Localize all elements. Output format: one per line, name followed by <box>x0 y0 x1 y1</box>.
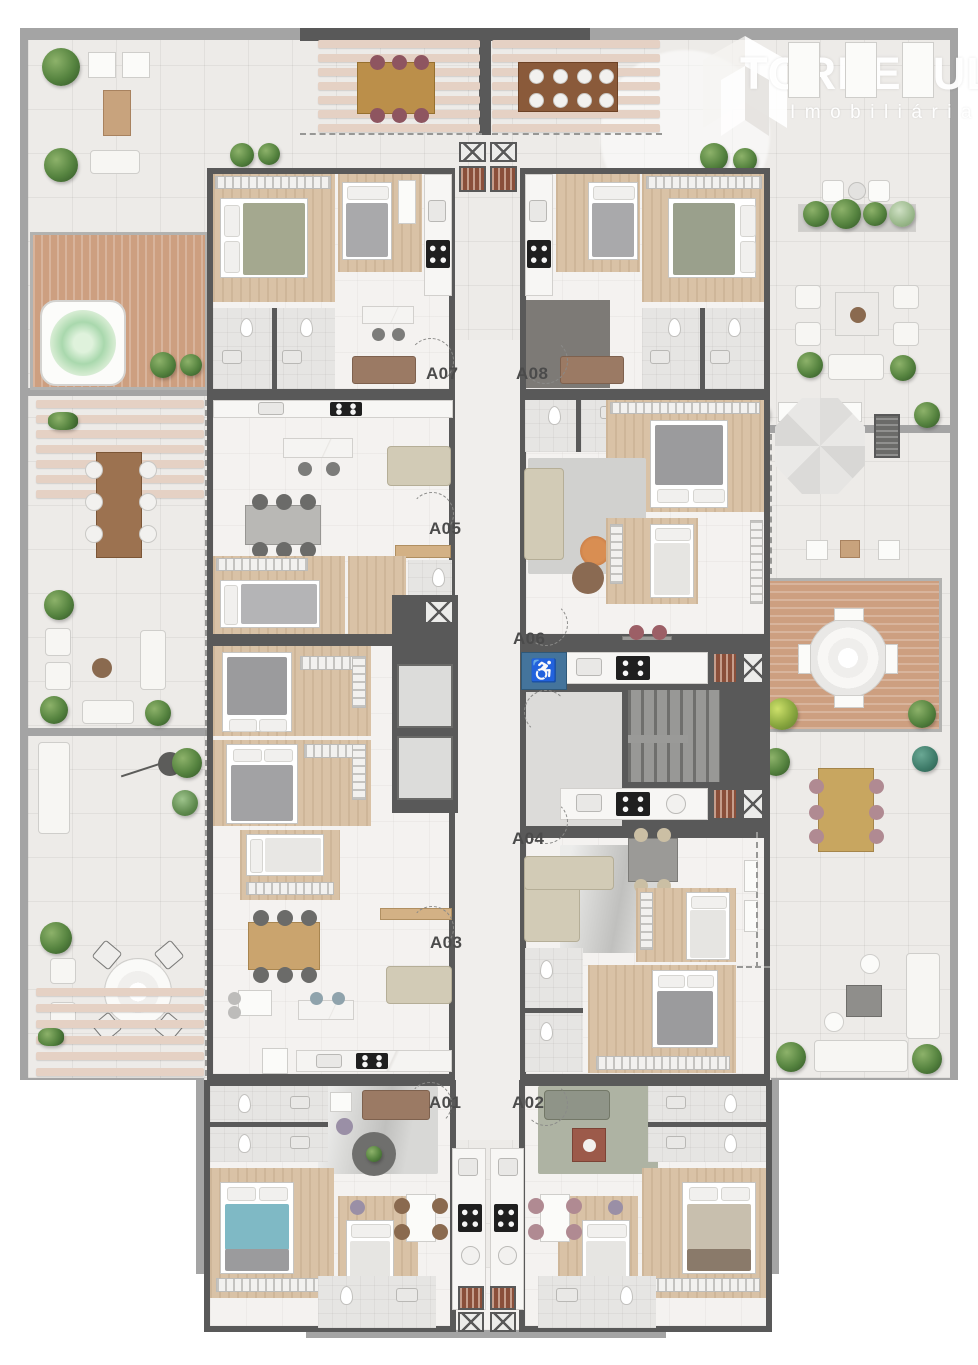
plant <box>258 143 280 165</box>
barbecue-grill <box>712 788 738 820</box>
wardrobe <box>216 1278 328 1292</box>
toilet <box>238 1134 251 1153</box>
cooktop <box>616 792 650 816</box>
bar-stool <box>332 992 345 1005</box>
dining-chair <box>394 1198 410 1214</box>
plant <box>42 48 80 86</box>
sun-lounger <box>788 42 820 98</box>
bistro-table <box>848 182 866 200</box>
sofa <box>352 356 416 384</box>
single-bed <box>650 524 694 598</box>
service-shaft <box>490 1312 516 1332</box>
hot-tub <box>40 300 126 386</box>
elevator <box>742 652 764 684</box>
watermark-tagline: Imobiliária <box>790 102 978 124</box>
dining-chair <box>528 1198 544 1214</box>
pergola-slat <box>492 40 660 48</box>
wardrobe <box>246 882 334 895</box>
lounge-chair <box>88 52 116 78</box>
coffee-table <box>572 1128 606 1162</box>
plant <box>912 746 938 772</box>
bar-stool <box>372 328 385 341</box>
plant <box>40 696 68 724</box>
bath-partition <box>525 1008 583 1013</box>
side-table <box>840 540 860 558</box>
armchair <box>893 285 919 309</box>
balcony-limit <box>492 133 662 135</box>
wardrobe <box>648 1278 760 1292</box>
patio-chair <box>878 540 900 560</box>
sun-lounger <box>845 42 877 98</box>
bar-stool <box>298 462 312 476</box>
wheelchair-icon: ♿ <box>530 658 557 683</box>
dining-chair <box>566 1224 582 1240</box>
bath-partition <box>272 308 277 389</box>
armchair <box>795 285 821 309</box>
side-table <box>330 1092 352 1112</box>
double-bed <box>682 1182 756 1274</box>
pergola-slat <box>318 40 480 48</box>
bath-partition <box>210 1122 328 1127</box>
round-deck-table <box>808 618 888 698</box>
coffee-table <box>846 985 882 1017</box>
double-bed <box>668 198 756 278</box>
bath-partition <box>576 400 581 452</box>
bar-stool <box>310 992 323 1005</box>
kitchen-counter <box>424 174 452 296</box>
cooktop <box>356 1053 388 1069</box>
pergola-divider-wall <box>479 28 491 135</box>
barbecue-grill <box>458 1286 484 1310</box>
deck-bench <box>885 644 898 674</box>
terrace-limit <box>770 434 772 574</box>
unit-label-A02: A02 <box>512 1093 544 1113</box>
accessible-wc-sign: ♿ <box>521 652 567 690</box>
kitchen-sink <box>458 1158 478 1176</box>
plant <box>40 922 72 954</box>
unit-label-A07: A07 <box>426 364 458 384</box>
wardrobe <box>646 176 762 189</box>
deck-bench <box>834 695 864 708</box>
side-table <box>92 658 112 678</box>
plant <box>44 590 74 620</box>
wardrobe <box>596 1056 730 1070</box>
side-table <box>103 90 131 136</box>
unit-label-A08: A08 <box>516 364 548 384</box>
plant <box>150 352 176 378</box>
service-shaft <box>459 142 486 162</box>
single-bed <box>686 892 730 960</box>
bath-sink <box>556 1288 578 1302</box>
plant <box>172 790 198 816</box>
bath-sink <box>290 1096 310 1109</box>
bath-sink <box>222 350 242 364</box>
balcony-limit <box>300 133 482 135</box>
deck-bench <box>798 644 811 674</box>
kitchen-sink <box>576 794 602 812</box>
unit-label-A06: A06 <box>513 629 545 649</box>
lounge-chair <box>122 52 150 78</box>
kitchen-sink <box>258 402 284 415</box>
kitchen-island <box>362 306 414 324</box>
cooktop <box>527 240 551 268</box>
kitchen-sink <box>529 200 547 222</box>
coffee-table <box>572 562 604 594</box>
pergola-slat <box>36 400 204 408</box>
plant <box>230 143 254 167</box>
dining-chair <box>528 1224 544 1240</box>
barbecue-grill <box>490 1286 516 1310</box>
barbecue-grill <box>459 166 486 192</box>
bath-partition <box>648 1122 766 1127</box>
toilet <box>240 318 253 337</box>
single-bed <box>342 182 392 260</box>
plant <box>908 700 936 728</box>
armchair <box>795 322 821 346</box>
stairs <box>626 688 722 784</box>
pergola-slat <box>492 54 660 62</box>
toilet <box>238 1094 251 1113</box>
dining-chair <box>566 1198 582 1214</box>
dining-table <box>245 505 321 545</box>
unit-label-A03: A03 <box>430 933 462 953</box>
plant <box>180 354 202 376</box>
toilet <box>728 318 741 337</box>
plant <box>700 143 728 171</box>
plant <box>145 700 171 726</box>
kitchen-sink <box>576 658 602 676</box>
kitchen-sink <box>316 1054 342 1068</box>
armchair <box>893 322 919 346</box>
cooktop <box>330 402 362 416</box>
unit-label-A04: A04 <box>512 829 544 849</box>
bathroom <box>538 1276 656 1328</box>
double-bed <box>650 420 728 508</box>
walk-in-closet <box>352 744 366 800</box>
door-swing <box>524 690 568 734</box>
kitchen-sink <box>498 1158 518 1176</box>
wardrobe <box>610 524 623 584</box>
service-shaft <box>490 142 517 162</box>
plant <box>38 1028 64 1046</box>
bar-stool <box>326 462 340 476</box>
cooktop <box>616 656 650 680</box>
toilet <box>300 318 313 337</box>
barbecue-grill <box>712 652 738 684</box>
toilet <box>432 568 445 587</box>
outdoor-sofa <box>814 1040 908 1072</box>
outdoor-sofa <box>140 630 166 690</box>
sofa <box>524 468 564 560</box>
plant <box>776 1042 806 1072</box>
outdoor-sofa <box>906 953 940 1039</box>
fridge <box>262 1048 288 1074</box>
pouf <box>860 954 880 974</box>
cooktop <box>458 1204 482 1232</box>
cafe-chair <box>228 992 241 1005</box>
outdoor-dining-table <box>518 62 618 112</box>
pouf <box>824 1012 844 1032</box>
single-bed <box>220 580 320 628</box>
unit-label-A05: A05 <box>429 519 461 539</box>
barbecue-grill <box>874 414 900 458</box>
pergola-slat <box>492 124 660 132</box>
deck-bench <box>834 608 864 621</box>
kitchen-sink <box>428 200 446 222</box>
pergola-slat <box>36 1068 204 1076</box>
laundry-basin <box>666 794 686 814</box>
sofa <box>386 966 452 1004</box>
sun-lounger <box>902 42 934 98</box>
armchair <box>50 958 76 984</box>
double-bed <box>652 970 718 1048</box>
cooktop <box>494 1204 518 1232</box>
pergola-slat <box>318 124 480 132</box>
terrace-wall <box>20 728 210 736</box>
plant <box>912 1044 942 1074</box>
bath-sink <box>290 1136 310 1149</box>
double-bed <box>226 744 298 824</box>
pouf <box>608 1200 623 1215</box>
dining-table <box>406 1194 436 1242</box>
bath-sink <box>666 1096 686 1109</box>
toilet <box>620 1286 633 1305</box>
outdoor-dining-table <box>818 768 874 852</box>
round-rug <box>352 1132 396 1176</box>
bath-sink <box>666 1136 686 1149</box>
sofa <box>387 446 451 486</box>
dining-table <box>628 838 678 882</box>
bath-partition <box>700 308 705 389</box>
bar-stool <box>392 328 405 341</box>
elevator <box>397 736 453 800</box>
closet <box>750 520 763 604</box>
bath-sink <box>396 1288 418 1302</box>
wardrobe <box>215 176 331 189</box>
cooktop <box>426 240 450 268</box>
armchair <box>45 628 71 656</box>
sofa <box>560 356 624 384</box>
elevator <box>742 788 764 820</box>
toilet <box>668 318 681 337</box>
plant <box>797 352 823 378</box>
double-bed <box>220 1182 294 1274</box>
balcony-limit <box>756 832 758 968</box>
pergola-slat <box>36 1004 204 1012</box>
double-bed <box>220 198 308 278</box>
pergola-slat <box>36 430 204 438</box>
bench <box>90 150 140 174</box>
service-shaft <box>424 600 454 624</box>
toilet <box>724 1094 737 1113</box>
plant <box>44 148 78 182</box>
bath-sink <box>282 350 302 364</box>
pergola-slat <box>36 988 204 996</box>
toilet <box>540 960 553 979</box>
plant <box>914 402 940 428</box>
desk <box>398 180 416 224</box>
wardrobe <box>216 558 308 571</box>
pergola-slat <box>36 1020 204 1028</box>
bath-sink <box>650 350 670 364</box>
wardrobe <box>640 892 653 950</box>
dining-chair <box>432 1224 448 1240</box>
cafe-chair <box>228 1006 241 1019</box>
kitchen-island <box>283 438 353 458</box>
toilet <box>724 1134 737 1153</box>
barbecue-grill <box>490 166 517 192</box>
coffee-table <box>835 292 879 336</box>
pouf <box>336 1118 353 1135</box>
laundry-basin <box>498 1246 517 1265</box>
dining-table <box>540 1194 570 1242</box>
pergola-slat <box>36 1052 204 1060</box>
plant <box>48 412 78 430</box>
planter-box <box>798 204 916 232</box>
plant <box>172 748 202 778</box>
bath-sink <box>710 350 730 364</box>
toilet <box>340 1286 353 1305</box>
laundry-basin <box>461 1246 480 1265</box>
pouf <box>350 1200 365 1215</box>
corner-sofa <box>524 856 614 890</box>
plant <box>766 698 798 730</box>
single-bed <box>588 182 638 260</box>
dining-chair <box>394 1224 410 1240</box>
bathroom <box>318 1276 436 1328</box>
double-bed <box>222 652 292 732</box>
armchair <box>45 662 71 690</box>
floor-plan: TORRESUL Imobiliária <box>0 0 978 1365</box>
unit-label-A01: A01 <box>429 1093 461 1113</box>
outdoor-sofa <box>828 354 884 380</box>
outdoor-sofa <box>82 700 134 724</box>
corridor <box>455 395 520 1140</box>
terrace-limit <box>205 400 207 1076</box>
toilet <box>540 1022 553 1041</box>
kitchen-counter <box>525 174 553 296</box>
dining-chair <box>432 1198 448 1214</box>
dining-table <box>248 922 320 970</box>
elevator <box>397 664 453 728</box>
outdoor-dining-table <box>96 452 142 558</box>
balcony-limit <box>737 966 770 968</box>
cafe-table <box>238 990 272 1016</box>
wardrobe <box>610 402 760 414</box>
single-bed <box>246 834 324 876</box>
bistro-chair <box>868 180 890 202</box>
patio-chair <box>806 540 828 560</box>
toilet <box>548 406 561 425</box>
outdoor-dining-table <box>357 62 435 114</box>
plant <box>890 355 916 381</box>
walk-in-closet <box>352 656 366 708</box>
kitchen-island <box>298 1000 354 1020</box>
service-shaft <box>458 1312 484 1332</box>
